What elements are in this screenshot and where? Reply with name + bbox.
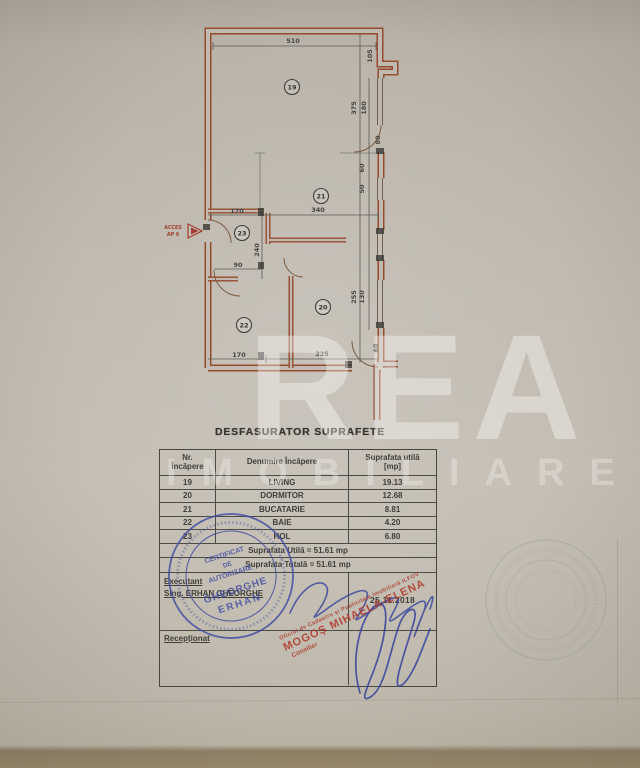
svg-text:255: 255 — [350, 290, 358, 304]
svg-text:170: 170 — [230, 207, 244, 215]
table-row: 20 DORMITOR 12.68 — [160, 490, 436, 504]
svg-text:510: 510 — [286, 37, 300, 45]
room-number-baie: 22 — [239, 322, 248, 330]
svg-text:130: 130 — [358, 290, 366, 304]
header-nr: Nr.Încăpere — [160, 450, 216, 475]
svg-text:105: 105 — [366, 49, 374, 63]
paper-crease — [0, 698, 640, 703]
outer-walls-inner — [208, 31, 398, 420]
svg-text:180: 180 — [360, 101, 368, 115]
floor-plan: 510 105 375 180 80 60 50 255 130 60 170 … — [0, 0, 640, 445]
access-arrow: ACCES AP 9 — [164, 224, 202, 238]
room-number-dormitor: 20 — [318, 304, 328, 312]
svg-text:60: 60 — [372, 343, 380, 353]
interior-walls-inner — [208, 211, 346, 368]
paper-edge-line — [617, 538, 618, 703]
svg-text:90: 90 — [233, 261, 243, 269]
svg-text:60: 60 — [358, 163, 366, 173]
room-number-bucatarie: 21 — [316, 193, 326, 201]
table-row: 19 LIVING 19.13 — [160, 476, 436, 490]
header-suprafata: Suprafata utilă[mp] — [349, 450, 436, 475]
svg-text:375: 375 — [350, 101, 358, 115]
dimension-labels: 510 105 375 180 80 60 50 255 130 60 170 … — [230, 37, 382, 359]
room-number-living: 19 — [287, 84, 297, 92]
svg-text:AP 9: AP 9 — [167, 232, 180, 238]
svg-text:340: 340 — [311, 206, 325, 214]
svg-text:50: 50 — [358, 184, 366, 194]
svg-text:DE: DE — [222, 560, 233, 570]
svg-text:80: 80 — [374, 135, 382, 145]
scanned-floorplan-document: { "document": { "title": "DESFASURATOR S… — [0, 0, 640, 768]
scan-content: 510 105 375 180 80 60 50 255 130 60 170 … — [0, 0, 640, 768]
svg-text:170: 170 — [232, 351, 246, 359]
room-number-hol: 23 — [237, 230, 246, 238]
outer-walls — [208, 31, 398, 420]
page-title: DESFASURATOR SUPRAFETE — [150, 426, 450, 438]
interior-walls — [208, 211, 346, 368]
svg-text:325: 325 — [315, 350, 329, 358]
header-denumire: Denumire Încăpere — [216, 450, 349, 475]
svg-text:ACCES: ACCES — [164, 225, 182, 231]
svg-text:240: 240 — [253, 243, 261, 257]
door-arcs — [208, 125, 381, 367]
table-header-row: Nr.Încăpere Denumire Încăpere Suprafata … — [160, 450, 436, 476]
ghost-backside-stamp — [482, 536, 610, 664]
